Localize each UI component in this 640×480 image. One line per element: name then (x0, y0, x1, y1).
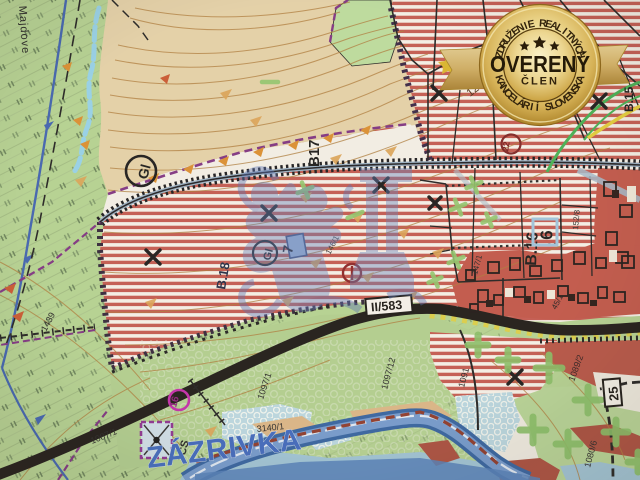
svg-text:OVERENÝ: OVERENÝ (490, 50, 590, 77)
svg-text:ČLEN: ČLEN (521, 75, 559, 88)
